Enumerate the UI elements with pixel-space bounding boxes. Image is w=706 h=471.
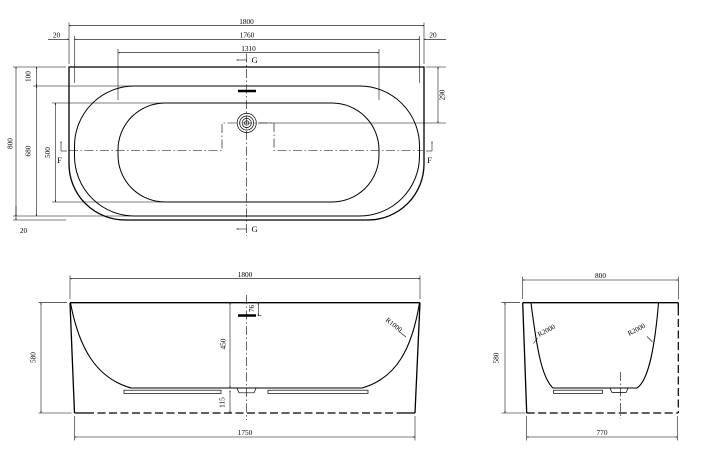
plan-dim-rim-width: 680 <box>24 145 33 156</box>
plan-section-label-g-bottom: G <box>252 224 258 234</box>
front-dim-overflow-offset: 76 <box>247 305 256 313</box>
plan-view: 1800 1760 20 20 1310 800 100 680 500 290… <box>6 17 447 236</box>
section-mark-f-right <box>426 142 432 152</box>
plan-dim-overall-length: 1800 <box>239 17 254 26</box>
plan-section-label-f-right: F <box>427 155 432 165</box>
front-support-pad-right <box>268 390 368 393</box>
plan-dim-drain-from-back: 290 <box>438 89 447 100</box>
side-radius-leader-right <box>647 337 653 343</box>
plan-section-label-f-left: F <box>57 155 62 165</box>
plan-extension-lines <box>13 23 446 221</box>
front-dim-wall-radius: R1000 <box>384 316 404 334</box>
front-view: 1800 580 1750 450 76 115 R1000 <box>29 270 421 441</box>
front-dim-inner-depth: 450 <box>219 338 228 349</box>
plan-dim-basin-length: 1310 <box>241 44 256 53</box>
side-basin-profile <box>531 303 659 388</box>
side-dim-overall-width: 800 <box>595 271 606 280</box>
plan-dim-gap-bottom: 20 <box>20 226 28 235</box>
bathtub-technical-drawing: 1800 1760 20 20 1310 800 100 680 500 290… <box>0 0 706 471</box>
section-mark-f-left <box>61 142 67 152</box>
front-support-pad-left <box>124 390 221 393</box>
side-front-wall <box>523 303 527 413</box>
side-dim-radius-left: R2000 <box>536 323 557 339</box>
side-dim-base-width: 770 <box>597 428 608 437</box>
tub-basin-bottom <box>118 103 379 202</box>
side-drain-recess <box>610 388 628 392</box>
front-dim-overall-length: 1800 <box>238 270 253 279</box>
plan-dim-rim-top-offset: 100 <box>24 71 33 82</box>
front-extension-lines <box>39 276 421 441</box>
plan-dim-gap-right: 20 <box>429 31 437 40</box>
front-dim-height: 580 <box>29 352 38 363</box>
front-radius-leader <box>399 332 406 338</box>
plan-section-label-g-top: G <box>252 55 258 65</box>
side-dim-radius-right: R2000 <box>626 322 647 338</box>
side-extension-lines <box>502 277 679 441</box>
plan-dim-overall-width: 800 <box>6 138 15 149</box>
plan-dim-gap-left: 20 <box>53 31 61 40</box>
drawing-sheet: 1800 1760 20 20 1310 800 100 680 500 290… <box>0 0 706 471</box>
side-view: 800 580 770 R2000 R2000 <box>492 271 679 441</box>
section-line-f <box>69 123 423 151</box>
plan-dim-basin-width: 500 <box>43 147 52 158</box>
side-support-pad <box>554 390 603 393</box>
plan-dim-rim-length: 1760 <box>240 31 255 40</box>
front-dim-base-height: 115 <box>218 397 227 408</box>
side-dim-height: 580 <box>492 352 501 363</box>
front-dim-base-length: 1750 <box>238 428 253 437</box>
